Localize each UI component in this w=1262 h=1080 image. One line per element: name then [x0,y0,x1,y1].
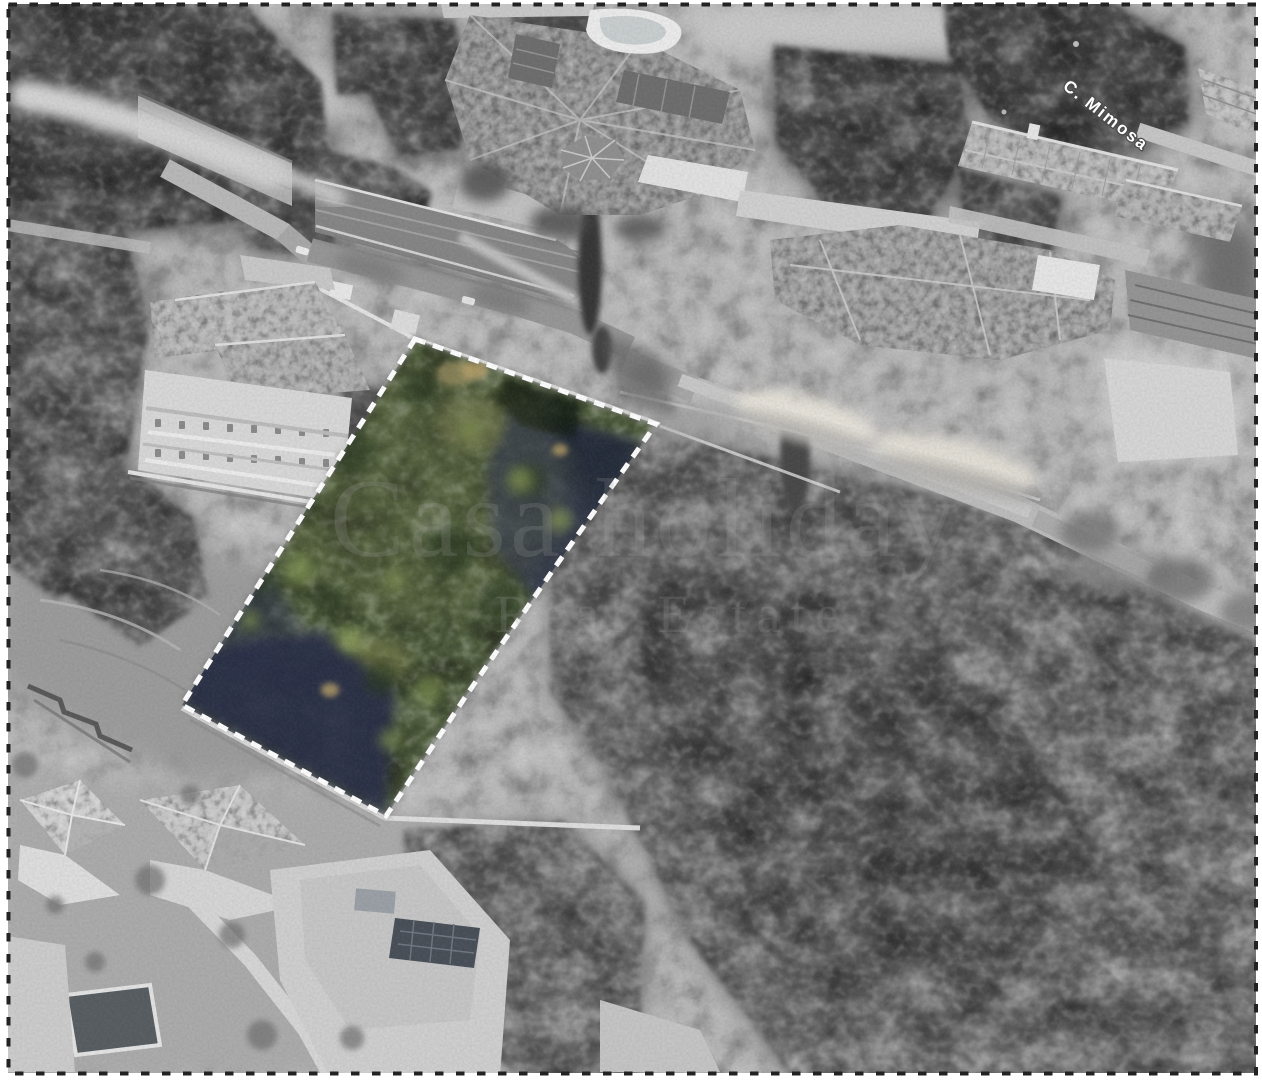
svg-text:Real Estate: Real Estate [495,584,849,644]
svg-text:Casa holiday: Casa holiday [330,457,960,581]
